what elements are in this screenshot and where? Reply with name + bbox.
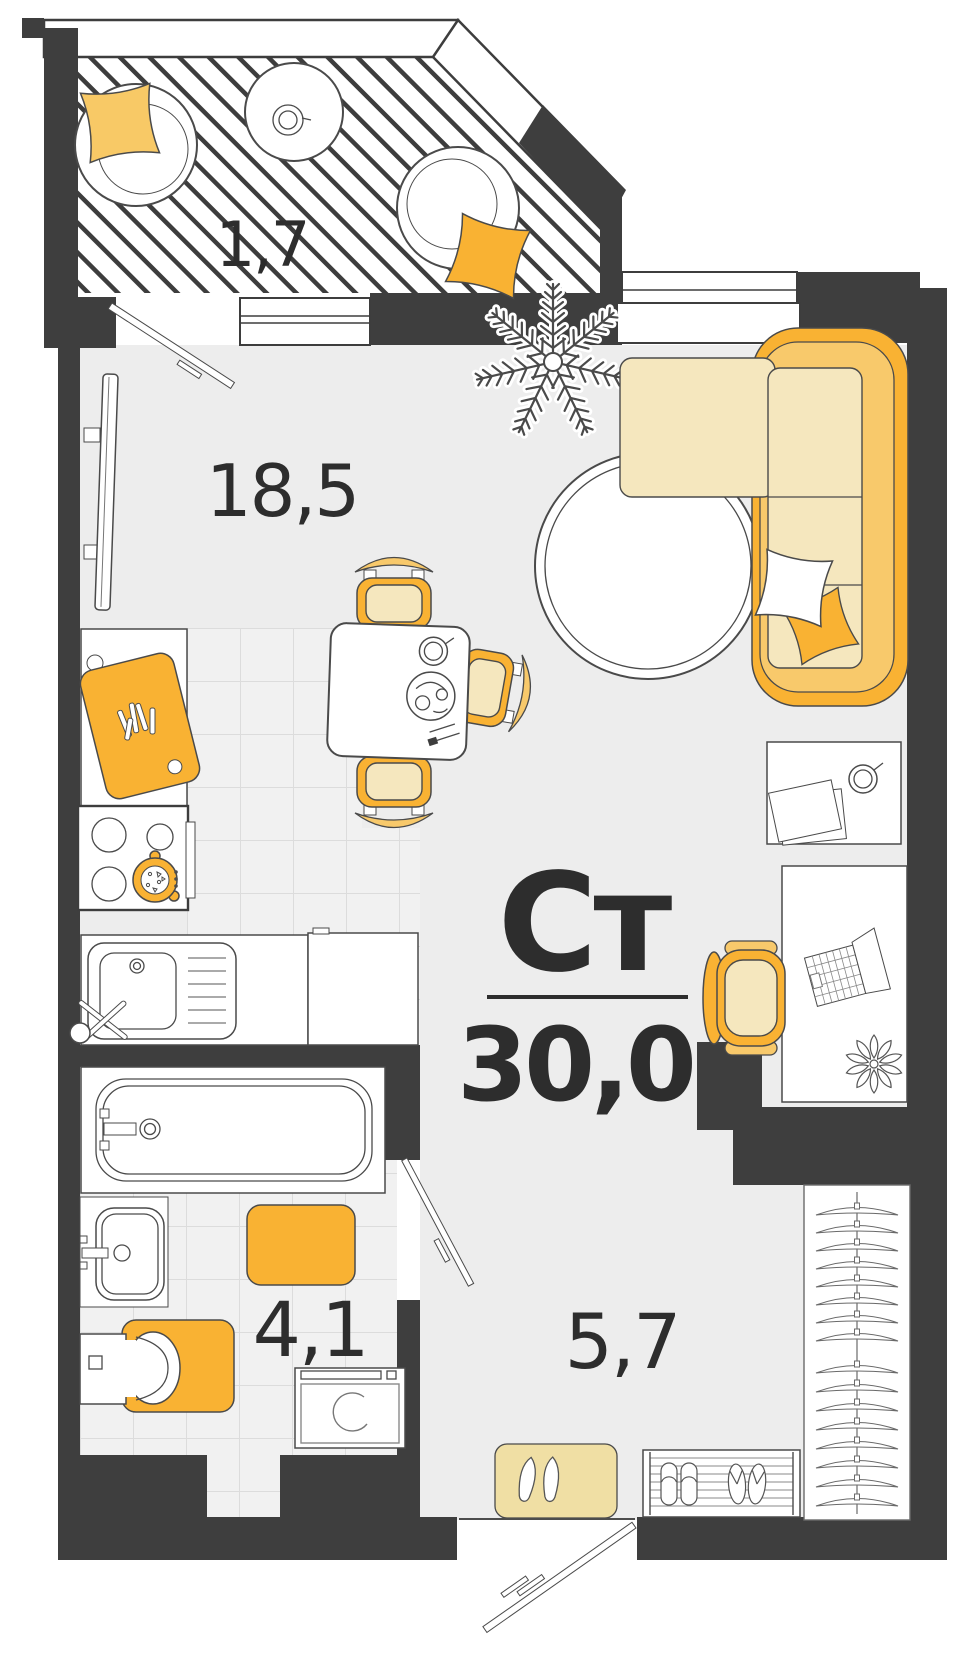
living-area-label: 18,5 [206, 449, 358, 533]
desk [782, 866, 907, 1102]
balcony-parapet-top [44, 20, 458, 57]
toilet-tank [80, 1334, 126, 1404]
slippers [661, 1463, 677, 1505]
oven-handle [186, 822, 195, 898]
balcony-chair-left [75, 83, 197, 206]
main-window-frame [622, 272, 797, 303]
balcony-left-wall [44, 28, 78, 348]
hallway-area-label: 5,7 [565, 1297, 680, 1386]
sofa-pillow-white [755, 549, 832, 626]
entrance-door [473, 1508, 636, 1632]
total-area-label: 30,0 [457, 1006, 693, 1125]
dining-table [327, 623, 471, 761]
sofa-chaise-cushion [620, 358, 775, 497]
bathroom-partition-upper [385, 1045, 420, 1160]
wall-stub-top-left [22, 18, 44, 38]
balcony-table [245, 63, 343, 161]
slippers [681, 1463, 697, 1505]
hall-partition [733, 1107, 910, 1185]
fridge [308, 933, 418, 1045]
balcony-area-label: 1,7 [216, 208, 309, 281]
side-table [767, 742, 901, 845]
shoe-rack [643, 1450, 800, 1517]
entrance-left-jamb [420, 1517, 457, 1560]
bath-mat [247, 1205, 355, 1285]
kitchen-bathroom-wall [58, 1045, 420, 1067]
wall-notch-tiles [207, 1455, 280, 1517]
doormat [495, 1444, 617, 1518]
left-outer-wall [58, 345, 80, 1465]
wardrobe [804, 1185, 910, 1520]
fridge-handle [313, 928, 329, 934]
office-chair [703, 941, 785, 1055]
toilet [80, 1320, 234, 1412]
balcony-window [240, 298, 370, 345]
bottom-right-wall [637, 1517, 910, 1560]
table-cup [419, 637, 448, 666]
washing-machine [295, 1368, 405, 1448]
right-outer-wall [907, 288, 947, 1560]
table-plate [406, 671, 456, 721]
coffee-cup [849, 765, 877, 793]
floor-plan: 1,7 18,5 4,1 5,7 Ст 30,0 [0, 0, 973, 1654]
bathroom-area-label: 4,1 [253, 1285, 368, 1374]
wall-stub-balcony-door [78, 297, 116, 348]
floor-plan-drawing: 1,7 18,5 4,1 5,7 Ст 30,0 [0, 0, 973, 1654]
apartment-type-label: Ст [498, 845, 673, 1003]
